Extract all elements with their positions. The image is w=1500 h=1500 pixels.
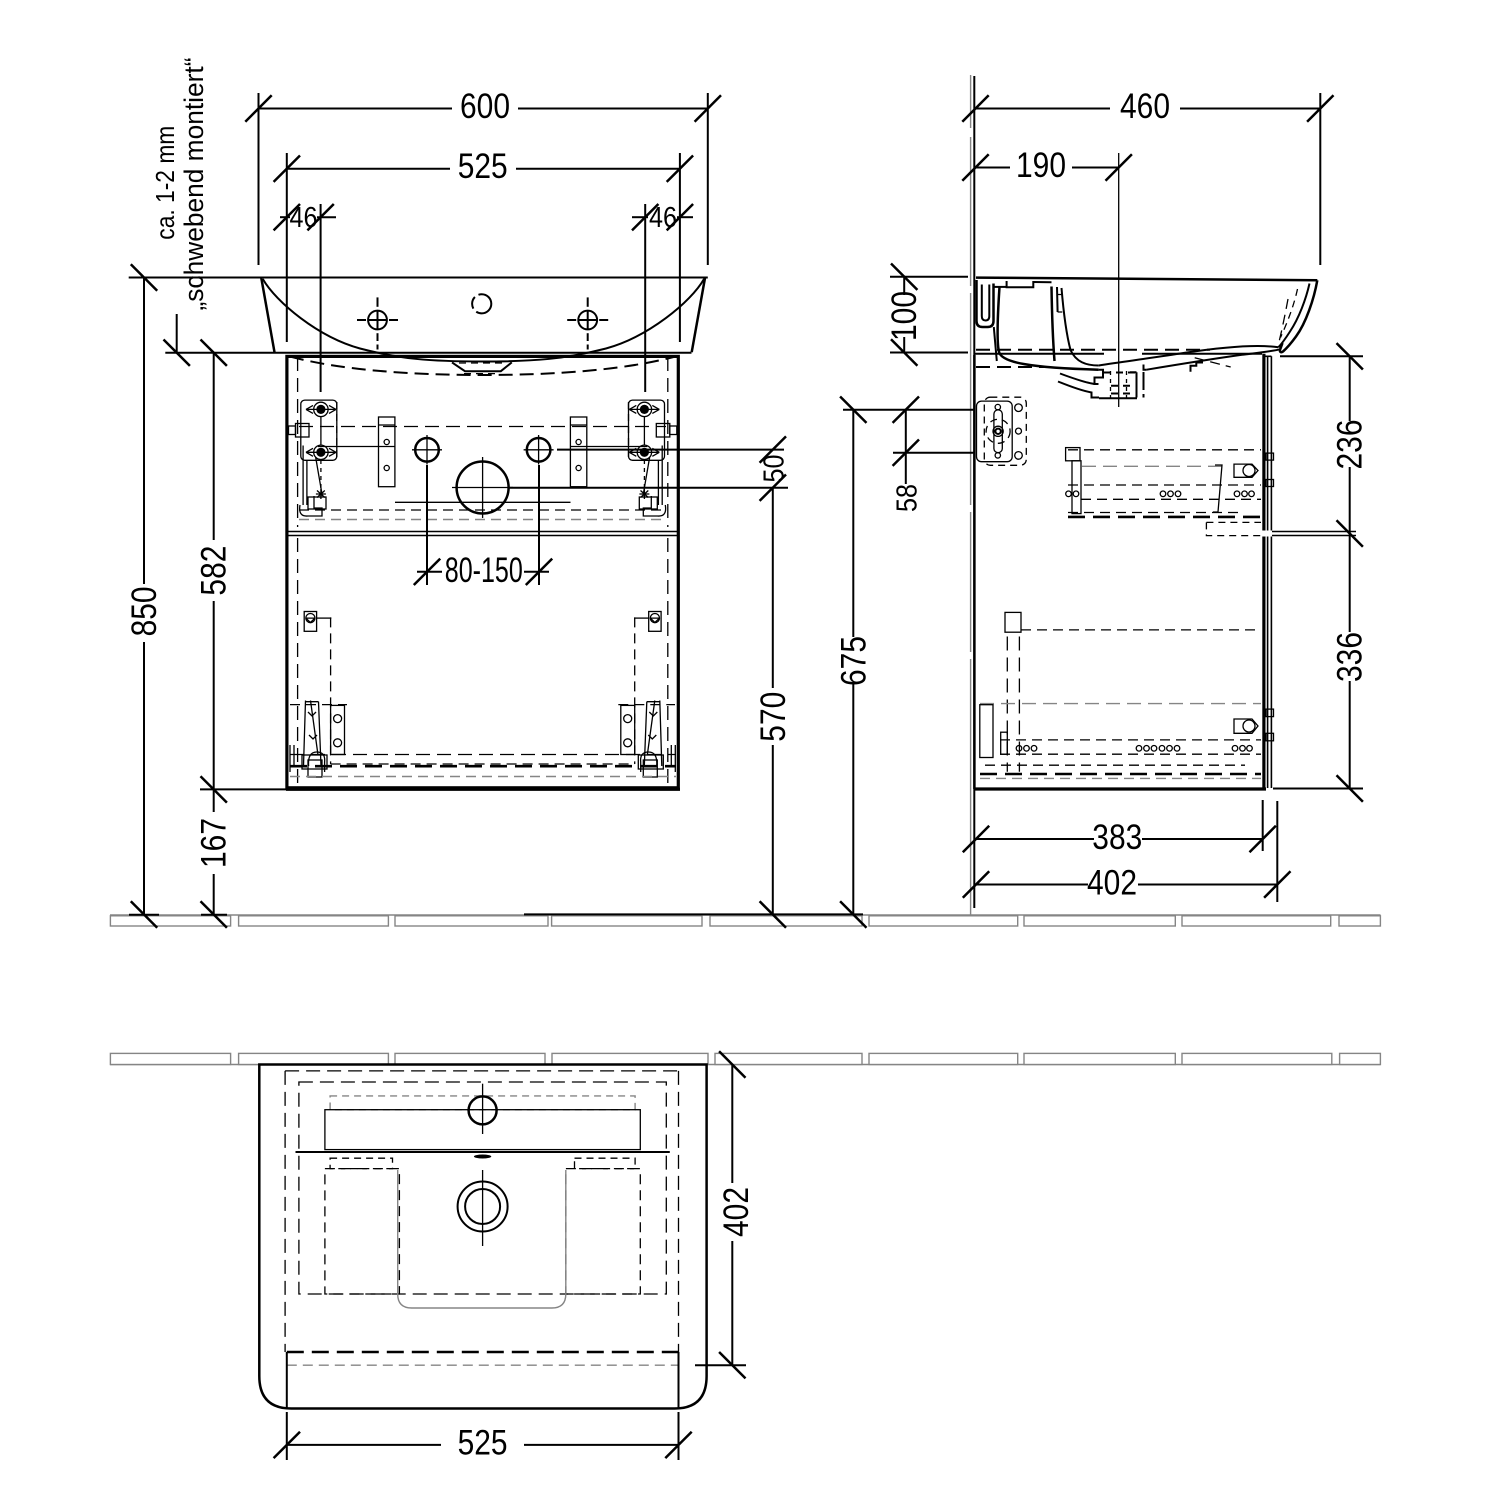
svg-text:100: 100 — [885, 291, 924, 341]
svg-text:582: 582 — [195, 546, 234, 596]
svg-text:236: 236 — [1331, 420, 1370, 470]
svg-text:402: 402 — [1087, 864, 1137, 903]
svg-text:167: 167 — [195, 818, 234, 868]
svg-text:ca. 1-2 mm: ca. 1-2 mm — [150, 126, 180, 240]
svg-text:46: 46 — [649, 202, 677, 234]
svg-text:46: 46 — [290, 202, 318, 234]
svg-text:525: 525 — [458, 1424, 508, 1463]
svg-text:80-150: 80-150 — [445, 551, 523, 590]
svg-text:850: 850 — [125, 586, 164, 636]
svg-text:402: 402 — [717, 1187, 756, 1237]
svg-text:675: 675 — [834, 636, 873, 686]
svg-text:525: 525 — [458, 147, 508, 186]
svg-text:600: 600 — [460, 87, 510, 126]
svg-text:570: 570 — [754, 692, 793, 742]
svg-text:336: 336 — [1331, 632, 1370, 682]
svg-text:„schwebend montiert“: „schwebend montiert“ — [179, 58, 209, 311]
svg-text:460: 460 — [1120, 87, 1170, 126]
svg-text:50: 50 — [759, 455, 791, 483]
svg-text:58: 58 — [892, 484, 924, 512]
svg-text:190: 190 — [1016, 146, 1066, 185]
svg-text:383: 383 — [1092, 818, 1142, 857]
